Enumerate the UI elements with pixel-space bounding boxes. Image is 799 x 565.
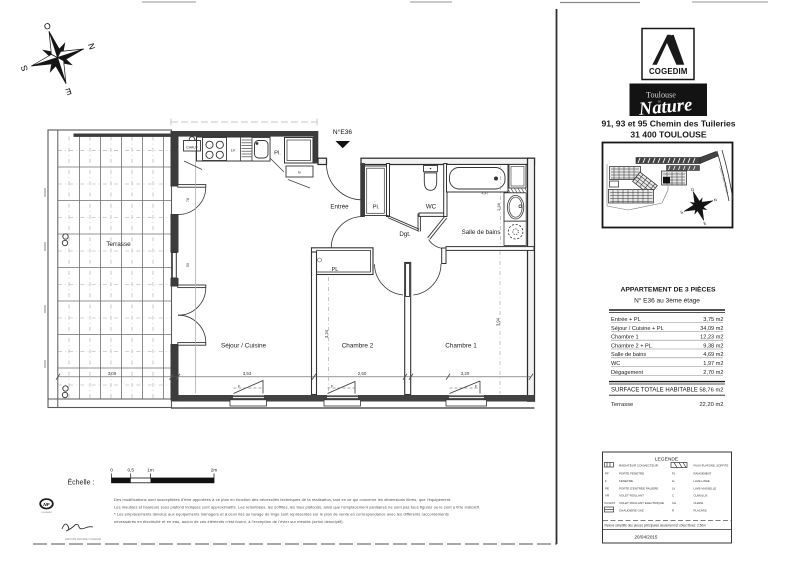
svg-text:Des modifications sont suscept: Des modifications sont susceptibles d'êt… bbox=[114, 497, 451, 502]
svg-text:Salle de bains: Salle de bains bbox=[611, 352, 646, 358]
svg-text:NF: NF bbox=[43, 502, 50, 508]
svg-text:9,38 m2: 9,38 m2 bbox=[703, 343, 723, 349]
svg-text:4,47: 4,47 bbox=[482, 192, 489, 196]
svg-text:FAUX-PLAFOND, SOFFITE: FAUX-PLAFOND, SOFFITE bbox=[694, 464, 729, 468]
svg-text:3,34: 3,34 bbox=[324, 329, 329, 338]
svg-text:22,20 m2: 22,20 m2 bbox=[699, 402, 723, 408]
svg-text:WC: WC bbox=[426, 204, 437, 211]
svg-text:CUMULUS: CUMULUS bbox=[694, 494, 708, 498]
svg-text:Échelle :: Échelle : bbox=[68, 478, 95, 487]
svg-text:0: 0 bbox=[110, 468, 113, 473]
svg-text:LEGENDE: LEGENDE bbox=[655, 457, 679, 463]
svg-text:34,09 m2: 34,09 m2 bbox=[700, 326, 723, 332]
svg-text:2m: 2m bbox=[211, 468, 218, 473]
svg-text:N°E36: N°E36 bbox=[333, 128, 352, 136]
svg-text:CH: CH bbox=[672, 501, 676, 505]
svg-text:LL: LL bbox=[672, 479, 676, 483]
svg-text:N° E36 au 3ème étage: N° E36 au 3ème étage bbox=[634, 297, 700, 305]
svg-text:Séjour / Cuisine + PL: Séjour / Cuisine + PL bbox=[611, 326, 664, 332]
svg-text:Séjour / Cuisine: Séjour / Cuisine bbox=[221, 343, 267, 350]
svg-text:COGEDIM: COGEDIM bbox=[649, 67, 688, 76]
svg-text:Pl.: Pl. bbox=[274, 151, 281, 157]
svg-text:PL: PL bbox=[672, 472, 676, 476]
svg-text:3,20: 3,20 bbox=[461, 371, 470, 376]
svg-text:Chambre 2 + PL: Chambre 2 + PL bbox=[611, 343, 652, 349]
svg-text:WC: WC bbox=[611, 361, 620, 367]
svg-text:PLACARD: PLACARD bbox=[694, 509, 707, 513]
svg-text:Entrée: Entrée bbox=[330, 204, 349, 211]
svg-text:CHAUDIERE GAZ: CHAUDIERE GAZ bbox=[619, 509, 644, 513]
svg-text:Terrasse: Terrasse bbox=[611, 402, 633, 408]
svg-text:CHAPE: CHAPE bbox=[694, 501, 704, 505]
svg-text:1m: 1m bbox=[147, 468, 154, 473]
svg-text:tv: tv bbox=[298, 171, 301, 175]
svg-text:PL: PL bbox=[332, 267, 339, 273]
svg-text:3,94: 3,94 bbox=[496, 317, 501, 326]
svg-text:LAVE-VAISSELLE: LAVE-VAISSELLE bbox=[694, 487, 717, 491]
svg-text:3,53: 3,53 bbox=[243, 371, 252, 376]
svg-text:Terrasse: Terrasse bbox=[106, 241, 131, 248]
svg-text:90: 90 bbox=[186, 263, 190, 267]
svg-text:LOGEMENT: LOGEMENT bbox=[41, 512, 53, 514]
svg-text:Salle de bains: Salle de bains bbox=[462, 229, 501, 236]
svg-text:3,09: 3,09 bbox=[108, 371, 117, 376]
svg-text:* Les emplacements dévolus aux: * Les emplacements dévolus aux équipemen… bbox=[114, 512, 449, 517]
svg-text:Pl.: Pl. bbox=[373, 205, 380, 211]
svg-text:RANGEMENT: RANGEMENT bbox=[694, 472, 712, 476]
svg-text:nécessaires en électricité et: nécessaires en électricité et en eau, au… bbox=[114, 519, 344, 524]
svg-text:F: F bbox=[605, 479, 607, 483]
svg-text:4,69 m2: 4,69 m2 bbox=[703, 352, 723, 358]
svg-text:PORTE D'ENTREE PALIERE: PORTE D'ENTREE PALIERE bbox=[619, 487, 658, 491]
svg-text:91, 93 et 95 Chemin des Tuiler: 91, 93 et 95 Chemin des Tuileries bbox=[601, 119, 735, 129]
svg-text:20/04/2015: 20/04/2015 bbox=[635, 535, 658, 540]
svg-text:Dgt.: Dgt. bbox=[399, 231, 411, 238]
svg-text:SURFACE TOTALE HABITABLE: SURFACE TOTALE HABITABLE bbox=[611, 388, 698, 394]
svg-text:2,50: 2,50 bbox=[358, 371, 367, 376]
svg-text:GROUPE ARCADE COGEDIM: GROUPE ARCADE COGEDIM bbox=[65, 537, 101, 541]
svg-text:0,5: 0,5 bbox=[128, 468, 135, 473]
svg-text:RADIATEUR CONVECTEUR: RADIATEUR CONVECTEUR bbox=[619, 464, 659, 468]
svg-text:2,38: 2,38 bbox=[496, 202, 501, 211]
svg-text:1,97 m2: 1,97 m2 bbox=[703, 361, 723, 367]
svg-text:LAVE-LINGE: LAVE-LINGE bbox=[694, 479, 710, 483]
svg-text:Les meubles et hauteurs sous p: Les meubles et hauteurs sous plafond ind… bbox=[114, 504, 480, 509]
svg-text:FENETRE: FENETRE bbox=[619, 479, 633, 483]
svg-text:APPARTEMENT DE 3 PIÈCES: APPARTEMENT DE 3 PIÈCES bbox=[620, 285, 716, 294]
svg-text:78: 78 bbox=[186, 198, 190, 202]
svg-text:PF: PF bbox=[605, 472, 609, 476]
svg-text:C: C bbox=[672, 494, 674, 498]
svg-text:3,75 m2: 3,75 m2 bbox=[703, 317, 723, 323]
svg-text:Chambre 2: Chambre 2 bbox=[342, 343, 374, 350]
svg-text:PE: PE bbox=[605, 487, 609, 491]
svg-text:Chambre 1: Chambre 1 bbox=[445, 343, 477, 350]
svg-text:31 400 TOULOUSE: 31 400 TOULOUSE bbox=[630, 130, 707, 140]
svg-text:58,76 m2: 58,76 m2 bbox=[699, 388, 723, 394]
svg-text:Dégagement: Dégagement bbox=[611, 370, 643, 376]
svg-text:LV: LV bbox=[672, 487, 675, 491]
svg-text:VOLET ROULANT: VOLET ROULANT bbox=[619, 494, 644, 498]
svg-text:2,70 m2: 2,70 m2 bbox=[703, 370, 723, 376]
svg-text:Entrée + PL: Entrée + PL bbox=[611, 317, 641, 323]
svg-text:Chambre 1: Chambre 1 bbox=[611, 335, 639, 341]
svg-text:PORTE FENETRE: PORTE FENETRE bbox=[619, 472, 644, 476]
svg-text:V.R.EST: V.R.EST bbox=[604, 501, 616, 505]
svg-text:12,23 m2: 12,23 m2 bbox=[700, 335, 723, 341]
svg-text:Relevé simplifié des pièces pr: Relevé simplifié des pièces principales … bbox=[605, 524, 707, 528]
svg-text:R: R bbox=[672, 509, 674, 513]
svg-text:LV: LV bbox=[231, 149, 236, 153]
svg-text:VOLET ROULANT ELECTRIQUE: VOLET ROULANT ELECTRIQUE bbox=[619, 501, 664, 505]
